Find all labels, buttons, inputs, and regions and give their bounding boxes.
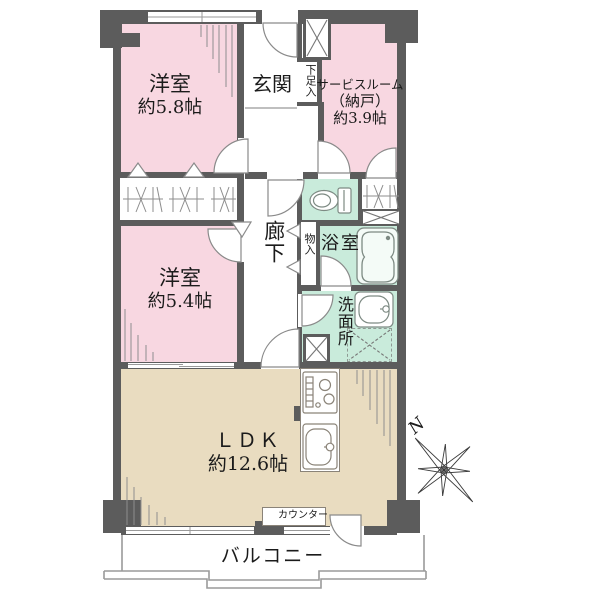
meter-box (303, 16, 331, 60)
door-opening (366, 172, 396, 179)
door-opening (238, 228, 244, 262)
bedroom2-area: 約5.4帖 (125, 291, 235, 312)
washroom-label: 洗面所 (334, 296, 353, 347)
door-opening (267, 172, 303, 179)
door-opening (261, 363, 299, 369)
door-opening (262, 10, 298, 24)
wall (350, 172, 366, 179)
wall (297, 24, 302, 60)
window (148, 12, 256, 22)
storage-box (361, 209, 401, 226)
toilet-floor (302, 179, 359, 220)
window (126, 527, 254, 534)
closet-interior (120, 178, 237, 220)
floor-plan: 洋室 約5.8帖 サービスルーム （納戸） 約3.9帖 洋室 約5.4帖 ＬＤＫ… (0, 0, 600, 600)
bedroom1-name: 洋室 (115, 72, 225, 97)
balcony-label: バルコニー (213, 545, 333, 567)
service-room-name: サービスルーム (308, 78, 412, 93)
ldk-name: ＬＤＫ (193, 429, 303, 453)
service-room-area: 約3.9帖 (308, 110, 412, 128)
pillar (385, 13, 418, 43)
wall (303, 172, 318, 179)
shoe-cabinet-label: 下足入 (303, 64, 316, 97)
wall (237, 24, 244, 364)
door-opening (321, 286, 351, 291)
bedroom2-name: 洋室 (125, 266, 235, 291)
entrance-label: 玄関 (246, 73, 298, 97)
door-opening (298, 294, 302, 327)
counter-label: カウンター (278, 510, 324, 522)
compass-north-label: N (403, 412, 431, 440)
ldk-area: 約12.6帖 (193, 453, 303, 475)
door-opening (330, 526, 364, 535)
kitchen-counter (300, 368, 340, 472)
bathroom-label: 浴室 (320, 233, 362, 254)
pipe-space-box (303, 334, 330, 364)
window (284, 527, 330, 534)
wall (120, 220, 244, 226)
wall (245, 172, 267, 179)
bedroom1-area: 約5.8帖 (115, 97, 225, 118)
hall-closet-label: 物入 (302, 233, 315, 255)
service-room-alias: （納戸） (308, 93, 412, 111)
sliding-partition (128, 363, 234, 368)
ldk-label: ＬＤＫ 約12.6帖 (193, 429, 303, 475)
hallway-label: 廊下 (261, 220, 286, 264)
door-opening (318, 172, 350, 179)
wall (396, 172, 403, 179)
door-opening (238, 138, 244, 173)
service-room-label: サービスルーム （納戸） 約3.9帖 (308, 78, 412, 128)
bedroom1-label: 洋室 約5.8帖 (115, 72, 225, 118)
bedroom2-label: 洋室 約5.4帖 (125, 266, 235, 312)
